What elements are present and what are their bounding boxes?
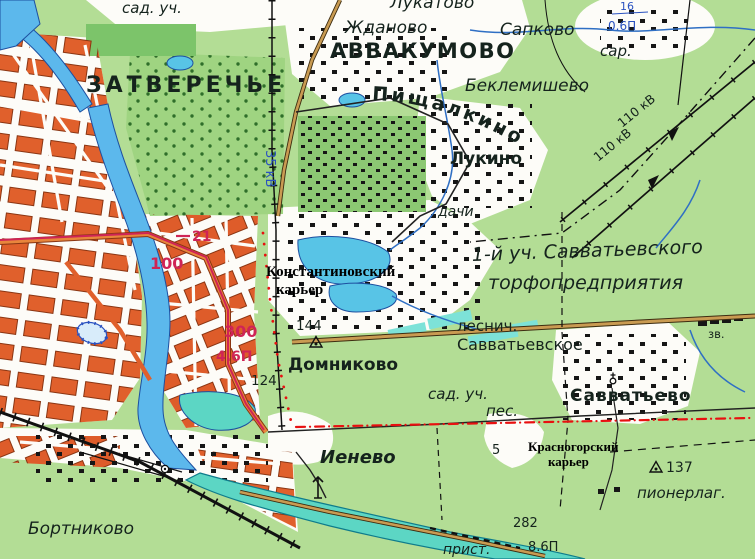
label-35kv: 35 кВ: [262, 150, 277, 187]
label-savvatyevskoye: Савватьевское: [457, 335, 583, 354]
label-lesnichestvo: леснич.: [457, 317, 517, 335]
label-fur-farm: зв.: [708, 327, 725, 341]
annotation-krasnogorsky-line2: карьер: [548, 454, 589, 469]
label-peat-section-line2: торфопредприятия: [488, 272, 683, 294]
label-elevation-137: 137: [666, 460, 693, 476]
label-bridge-300: 300: [224, 322, 257, 341]
label-zatverechye: ЗАТВЕРЕЧЬЕ: [86, 73, 286, 98]
label-avvakumovo: Аввакумово: [330, 39, 515, 63]
label-lukino: Лукино: [450, 149, 522, 169]
grove-top-left: [86, 24, 196, 56]
label-sapkovo: Сапково: [500, 20, 575, 40]
label-river-282: 282: [513, 516, 538, 531]
label-elevation-144: 144: [296, 318, 322, 334]
label-stream-depth: 0.6П: [608, 19, 636, 33]
label-dachi: дачи: [437, 204, 474, 220]
label-pioneer-camp: пионерлаг.: [637, 484, 726, 502]
label-garden-plots-top: сад. уч.: [122, 0, 182, 17]
label-beklemishevo: Беклемишево: [465, 76, 589, 96]
label-savvatyevo: Савватьево: [570, 386, 692, 406]
label-zhdanovo: Жданово: [344, 18, 427, 38]
annotation-konstantinovsky-line2: карьер: [276, 282, 323, 298]
label-river-86p: 8.6П: [528, 540, 558, 555]
label-elevation-124: 124: [251, 373, 277, 389]
label-depth-5: 5: [492, 443, 500, 458]
label-sand-pit: пес.: [486, 402, 518, 420]
label-garden-plots-2: сад. уч.: [428, 385, 488, 403]
label-ienevo: Иенево: [320, 447, 396, 468]
buildings-orchards: [298, 116, 426, 212]
label-domnikovo: Домниково: [288, 355, 398, 375]
topo-map-frame[interactable]: сад. уч. ЗАТВЕРЕЧЬЕ Лукатово Жданово Сап…: [0, 0, 755, 559]
label-lukatovo: Лукатово: [389, 0, 474, 13]
label-bortnikovo: Бортниково: [28, 519, 134, 539]
label-route-100: 100: [150, 254, 183, 273]
water-tower-icon: [161, 465, 168, 472]
label-route-21: 21: [192, 229, 211, 245]
annotation-krasnogorsky-line1: Красногорский: [528, 439, 619, 454]
topo-map-canvas[interactable]: сад. уч. ЗАТВЕРЕЧЬЕ Лукатово Жданово Сап…: [0, 0, 755, 559]
label-stream-width: 16: [620, 0, 634, 13]
annotation-konstantinovsky-line1: Константиновский: [266, 264, 396, 280]
label-bridge-46p: 4.6П: [216, 349, 253, 365]
label-sarai: сар.: [600, 42, 632, 60]
label-pier: прист.: [443, 542, 490, 558]
